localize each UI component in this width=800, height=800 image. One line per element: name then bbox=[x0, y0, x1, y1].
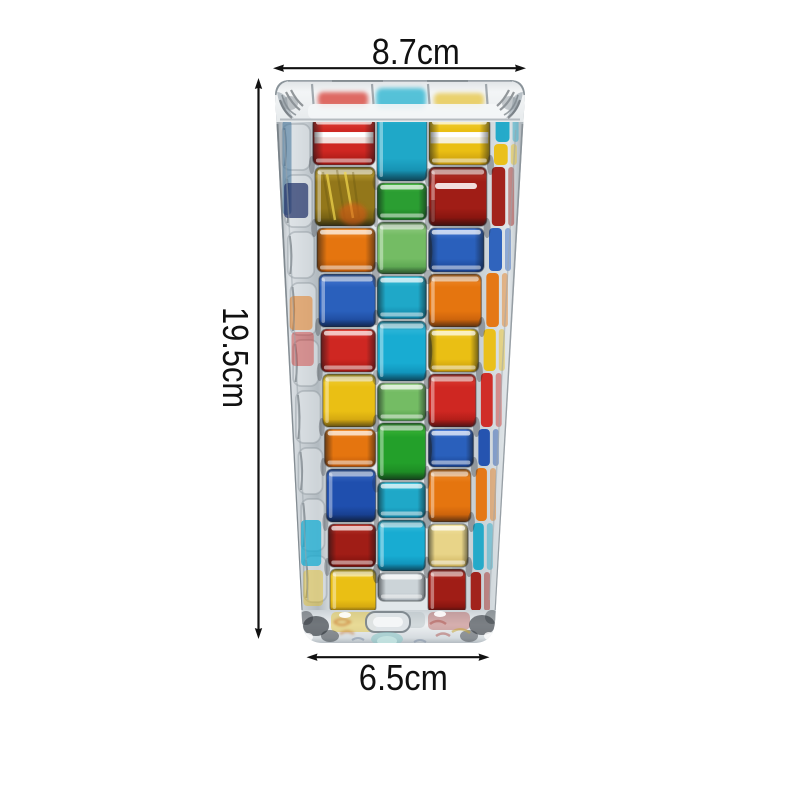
svg-text:6.5cm: 6.5cm bbox=[359, 657, 448, 698]
svg-text:19.5cm: 19.5cm bbox=[215, 307, 256, 408]
svg-text:8.7cm: 8.7cm bbox=[372, 31, 460, 72]
